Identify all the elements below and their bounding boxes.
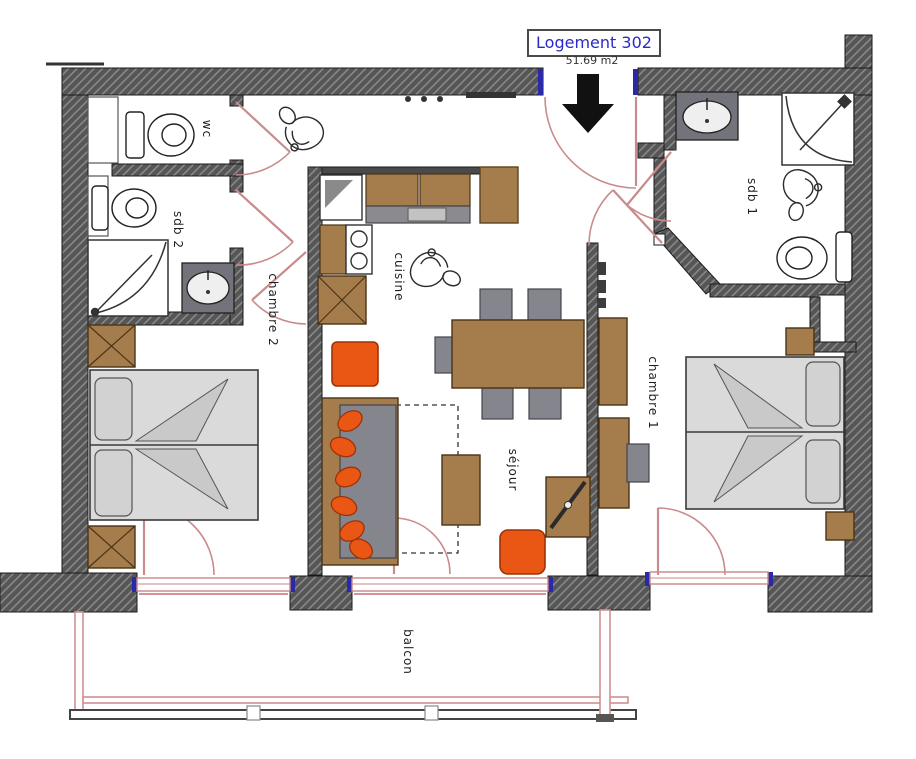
apartment-title[interactable]: Logement 302 bbox=[527, 29, 661, 57]
person-kitchen-sketch bbox=[406, 244, 468, 300]
desk-chair bbox=[627, 444, 649, 482]
pouf-orange-sejour bbox=[500, 530, 545, 574]
kitchen-cabinet bbox=[320, 225, 346, 274]
pillow bbox=[806, 440, 840, 503]
floor-plan-drawing bbox=[0, 0, 916, 759]
railing-end-block bbox=[596, 714, 614, 722]
sofa bbox=[322, 398, 398, 565]
shower-sdb1-icon bbox=[782, 93, 854, 165]
kitchen-counter bbox=[366, 174, 470, 223]
toilet-wc-icon bbox=[126, 112, 194, 158]
coffee-table bbox=[442, 455, 480, 525]
sdb2-door bbox=[236, 190, 293, 265]
window-chambre2 bbox=[137, 578, 290, 594]
nightstand-chambre1-bottom bbox=[826, 512, 854, 540]
shower-sdb2-icon bbox=[88, 240, 168, 316]
bed-chambre1 bbox=[686, 357, 844, 509]
toilet-sdb2-icon bbox=[92, 186, 156, 230]
dining-set bbox=[435, 289, 584, 419]
kitchen-sink-icon bbox=[320, 175, 362, 220]
bed-chambre2 bbox=[90, 370, 258, 520]
room-label-chambre2: chambre 2 bbox=[265, 265, 281, 355]
chair bbox=[435, 337, 453, 373]
nightstand-chambre2-bottom bbox=[88, 526, 135, 568]
room-label-sejour: séjour bbox=[505, 435, 521, 505]
kitchen-crossed-cabinet bbox=[318, 276, 366, 324]
radiator-marks bbox=[598, 262, 606, 308]
person-sdb1-sketch bbox=[775, 166, 825, 225]
balcony-railing-outer bbox=[70, 710, 636, 719]
railing-post bbox=[425, 706, 438, 720]
pillow bbox=[95, 450, 132, 516]
room-label-balcon: balcon bbox=[400, 617, 416, 687]
balcony-railing-inner bbox=[83, 697, 628, 703]
desk-chambre1-bottom bbox=[599, 418, 629, 508]
window-sills bbox=[137, 572, 768, 594]
chair bbox=[528, 289, 561, 320]
balcony-door-chambre1 bbox=[658, 508, 725, 575]
room-label-wc: wc bbox=[199, 94, 215, 164]
sink-sdb2-icon bbox=[182, 263, 234, 313]
person-entry-sketch bbox=[267, 96, 329, 159]
apartment-area-label: 51.69 m2 bbox=[539, 54, 645, 67]
window-sejour bbox=[352, 578, 548, 594]
nightstand-chambre2-top bbox=[88, 325, 135, 367]
balcony-railing-right bbox=[600, 610, 610, 718]
sink-sdb1-icon bbox=[676, 92, 738, 140]
room-label-sdb2: sdb 2 bbox=[170, 195, 186, 265]
entrance-arrow bbox=[562, 74, 614, 133]
window-chambre1 bbox=[650, 572, 768, 584]
room-label-cuisine: cuisine bbox=[391, 242, 407, 312]
toilet-sdb1-icon bbox=[777, 232, 852, 282]
balcony-door-sejour bbox=[394, 518, 450, 574]
dining-table bbox=[452, 320, 584, 388]
pillow bbox=[806, 362, 840, 426]
desk-chambre1-top bbox=[599, 318, 627, 405]
balcony-railing-left bbox=[75, 612, 83, 716]
nightstand-chambre1-top bbox=[786, 328, 814, 355]
chair bbox=[480, 289, 512, 320]
balcony-railing bbox=[70, 610, 636, 722]
floor-plan: Logement 302 51.69 m2 wc sdb 2 chambre 2… bbox=[0, 0, 916, 759]
pouf-orange-kitchen bbox=[332, 342, 378, 386]
stove-icon bbox=[346, 225, 372, 274]
tv-stand bbox=[546, 477, 590, 537]
chair bbox=[482, 388, 513, 419]
room-label-sdb1: sdb 1 bbox=[744, 162, 760, 232]
pillow bbox=[95, 378, 132, 440]
chair bbox=[529, 388, 561, 419]
room-label-chambre1: chambre 1 bbox=[645, 348, 661, 438]
railing-post bbox=[247, 706, 260, 720]
entry-wardrobe bbox=[480, 167, 518, 223]
